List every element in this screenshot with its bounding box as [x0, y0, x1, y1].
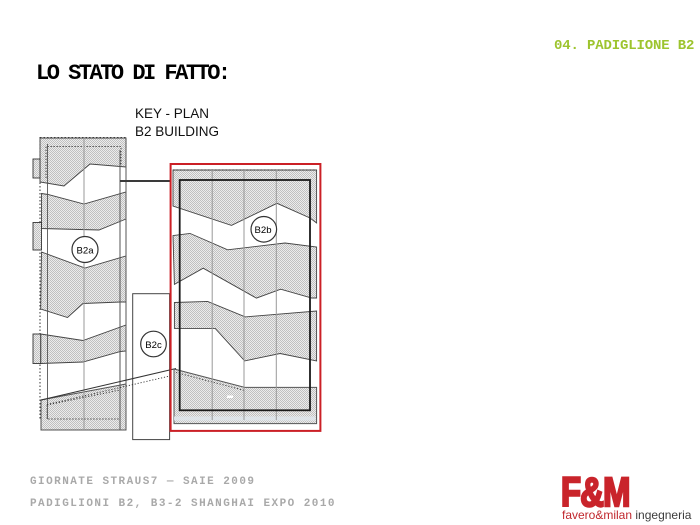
svg-text:B2a: B2a [76, 246, 94, 257]
svg-text:F&M: F&M [561, 475, 630, 511]
svg-text:B2c: B2c [145, 340, 162, 351]
svg-text:B2b: B2b [254, 225, 271, 236]
